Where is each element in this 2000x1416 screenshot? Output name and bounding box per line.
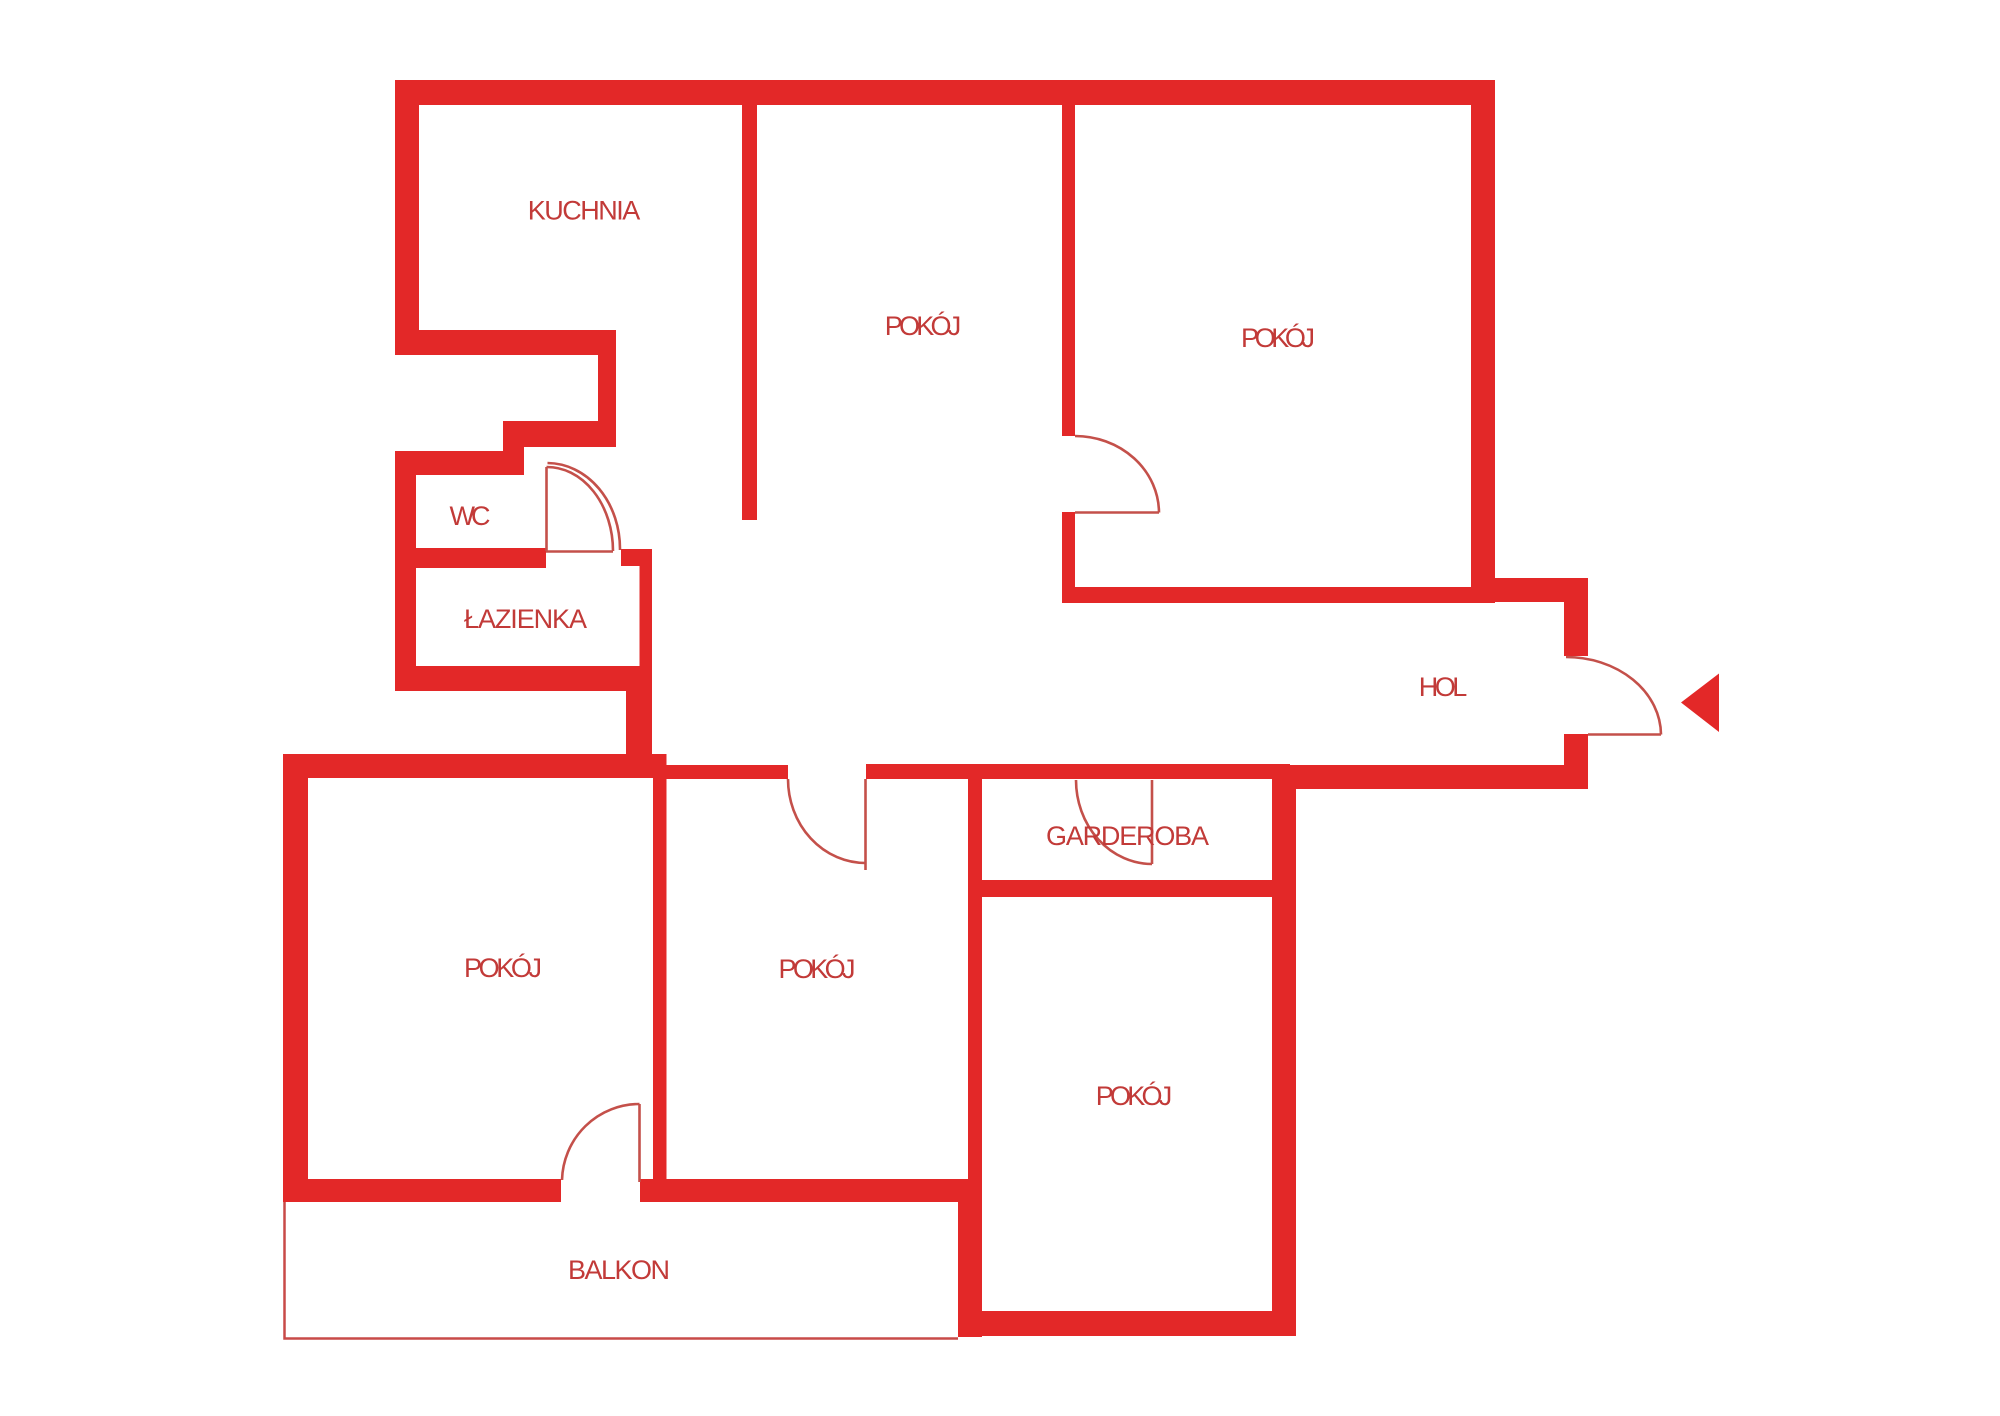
svg-text:BALKON: BALKON — [568, 1255, 670, 1285]
svg-text:KUCHNIA: KUCHNIA — [528, 196, 641, 226]
svg-text:GARDEROBA: GARDEROBA — [1046, 821, 1209, 851]
svg-text:POKÓJ: POKÓJ — [1241, 322, 1315, 353]
svg-text:HOL: HOL — [1419, 672, 1468, 702]
svg-text:POKÓJ: POKÓJ — [779, 953, 856, 984]
svg-text:ŁAZIENKA: ŁAZIENKA — [464, 604, 587, 634]
svg-text:POKÓJ: POKÓJ — [1096, 1080, 1173, 1111]
svg-text:POKÓJ: POKÓJ — [885, 310, 962, 341]
svg-text:WC: WC — [450, 501, 491, 531]
svg-text:POKÓJ: POKÓJ — [464, 952, 542, 983]
